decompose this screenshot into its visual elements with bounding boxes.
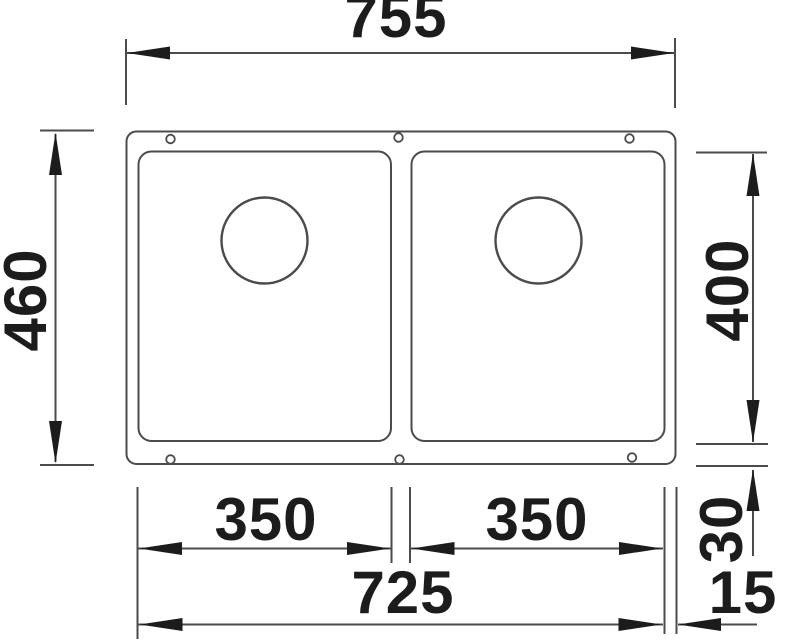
dim-label-overall-depth: 460: [0, 248, 59, 351]
right-drain-circle: [496, 198, 582, 284]
dim-label-right-bowl-width: 350: [485, 486, 588, 553]
dim-label-side-offset: 15: [709, 559, 778, 626]
arrowhead-up-icon: [747, 154, 760, 197]
mounting-hole-icon: [394, 133, 403, 142]
sink-plan: [127, 132, 676, 465]
sink-outer-outline: [127, 132, 676, 465]
left-drain-circle: [222, 198, 308, 284]
dim-left-bowl-width: 350: [138, 486, 391, 555]
dim-bowl-depth: 400: [694, 153, 768, 445]
arrowhead-down-icon: [49, 421, 62, 464]
mounting-hole-icon: [628, 453, 637, 462]
arrowhead-up-icon: [49, 133, 62, 176]
dim-label-bottom-offset: 30: [688, 495, 755, 564]
arrowhead-left-icon: [127, 47, 170, 60]
dim-label-overall-width: 755: [344, 0, 447, 50]
arrowhead-left-icon: [139, 542, 182, 555]
dim-side-offset: 15: [678, 559, 777, 631]
mounting-hole-icon: [166, 455, 175, 464]
dim-bottom-offset: 30: [688, 466, 768, 563]
left-bowl-outline: [139, 152, 392, 442]
mounting-hole-icon: [395, 455, 404, 464]
dim-right-bowl-width: 350: [411, 486, 664, 555]
technical-drawing-canvas: 755 460 400 30 350: [0, 0, 787, 640]
dim-label-left-bowl-width: 350: [214, 486, 317, 553]
arrowhead-left-icon: [140, 618, 183, 631]
dim-label-bowl-depth: 400: [694, 238, 761, 341]
mounting-hole-icon: [625, 134, 634, 143]
arrowhead-right-icon: [631, 47, 674, 60]
sink-dimension-drawing: 755 460 400 30 350: [0, 0, 787, 640]
right-bowl-outline: [412, 152, 665, 442]
arrowhead-right-icon: [347, 542, 390, 555]
arrowhead-down-icon: [747, 400, 760, 443]
arrowhead-right-icon: [619, 542, 662, 555]
dim-label-cutout-width: 725: [351, 559, 454, 626]
arrowhead-right-icon: [619, 618, 662, 631]
mounting-hole-icon: [166, 135, 175, 144]
dim-cutout-width: 725: [138, 559, 663, 631]
arrowhead-left-icon: [412, 542, 455, 555]
dim-overall-depth: 460: [0, 131, 94, 466]
dim-overall-width: 755: [126, 0, 675, 108]
